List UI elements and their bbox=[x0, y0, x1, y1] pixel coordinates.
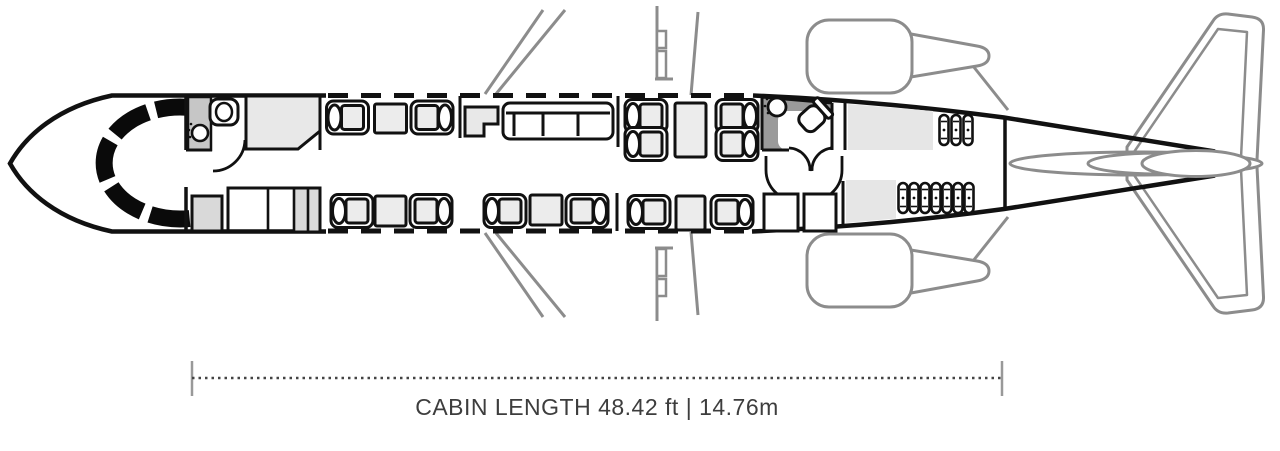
door-swing-arc bbox=[213, 140, 245, 171]
wing-lower bbox=[485, 232, 698, 321]
wardrobe bbox=[804, 194, 836, 231]
forward-credenza bbox=[192, 188, 320, 232]
cockpit-windshield-arc bbox=[104, 107, 196, 219]
toilet-icon bbox=[210, 99, 238, 125]
baggage-item bbox=[932, 183, 941, 213]
passenger-seat bbox=[410, 195, 452, 228]
passenger-seat bbox=[628, 196, 670, 229]
rudder-ellipse bbox=[1142, 151, 1250, 177]
seating bbox=[327, 100, 759, 231]
table bbox=[675, 103, 706, 157]
flap-fairing-icon bbox=[657, 31, 666, 48]
galley bbox=[246, 96, 320, 149]
baggage-item bbox=[921, 183, 930, 213]
faucet-dot bbox=[767, 112, 770, 115]
faucet-dot bbox=[189, 136, 192, 139]
passenger-seat bbox=[327, 101, 369, 134]
flap-fairing-icon bbox=[657, 279, 666, 296]
baggage-compartment bbox=[846, 104, 1005, 223]
sink-icon bbox=[768, 98, 786, 116]
wing-upper-trailing-edge-outer bbox=[691, 12, 698, 95]
engine-pylon-line bbox=[973, 66, 1008, 110]
divan-sofa bbox=[503, 103, 613, 139]
tail-fin bbox=[1010, 151, 1262, 177]
wing-lower-trailing-edge-outer bbox=[691, 232, 698, 315]
baggage-zone-bottom bbox=[846, 180, 896, 223]
wing-upper-leading-edge bbox=[485, 10, 543, 94]
flap-fairing-icon bbox=[657, 51, 666, 78]
dimension-line-group bbox=[192, 361, 1002, 396]
faucet-dot bbox=[764, 105, 767, 108]
table bbox=[530, 195, 562, 225]
wardrobe bbox=[764, 194, 798, 231]
side-cabinet bbox=[465, 107, 498, 136]
engine-pod-icon bbox=[807, 234, 912, 307]
baggage-item bbox=[943, 183, 952, 213]
wing-lower-leading-edge bbox=[485, 233, 543, 317]
aft-aisle bbox=[764, 156, 843, 231]
baggage-item bbox=[964, 115, 973, 145]
baggage-item bbox=[952, 115, 961, 145]
baggage-item bbox=[940, 115, 949, 145]
faucet-dot bbox=[766, 98, 769, 101]
faucet-dot bbox=[190, 123, 193, 126]
passenger-seat bbox=[711, 196, 753, 229]
door-swing-arc bbox=[812, 148, 833, 171]
baggage-item bbox=[910, 183, 919, 213]
wing-upper-slat-line bbox=[496, 10, 565, 94]
faucet-dot bbox=[188, 129, 191, 132]
cabin-length-caption: CABIN LENGTH 48.42 ft | 14.76m bbox=[0, 394, 1194, 421]
passenger-seat bbox=[716, 128, 758, 161]
engine-pod-icon bbox=[807, 20, 912, 93]
entry-cabinet bbox=[192, 196, 222, 231]
baggage-item bbox=[965, 183, 974, 213]
baggage-item bbox=[899, 183, 908, 213]
aircraft-cabin-floorplan: CABIN LENGTH 48.42 ft | 14.76m bbox=[0, 0, 1280, 451]
flap-fairing-icon bbox=[657, 249, 666, 276]
baggage-zone-top bbox=[848, 104, 933, 150]
forward-lavatory bbox=[186, 97, 245, 171]
door-swing-arc bbox=[789, 148, 810, 171]
wing-lower-slat-line bbox=[496, 233, 565, 317]
door-stubs bbox=[766, 156, 842, 170]
passenger-seat bbox=[331, 195, 373, 228]
floorplan-svg bbox=[0, 0, 1280, 451]
passenger-seat bbox=[411, 101, 453, 134]
sink-icon bbox=[192, 125, 208, 141]
table bbox=[676, 196, 705, 230]
table bbox=[375, 196, 406, 226]
passenger-seat bbox=[484, 195, 526, 228]
engine-pylon-line bbox=[973, 217, 1008, 261]
wing-upper bbox=[485, 6, 698, 95]
table bbox=[375, 104, 407, 133]
passenger-seat bbox=[566, 195, 608, 228]
baggage-item bbox=[954, 183, 963, 213]
passenger-seat bbox=[625, 128, 667, 161]
aft-lavatory bbox=[762, 97, 845, 171]
engine-nacelle-upper bbox=[807, 20, 1008, 110]
